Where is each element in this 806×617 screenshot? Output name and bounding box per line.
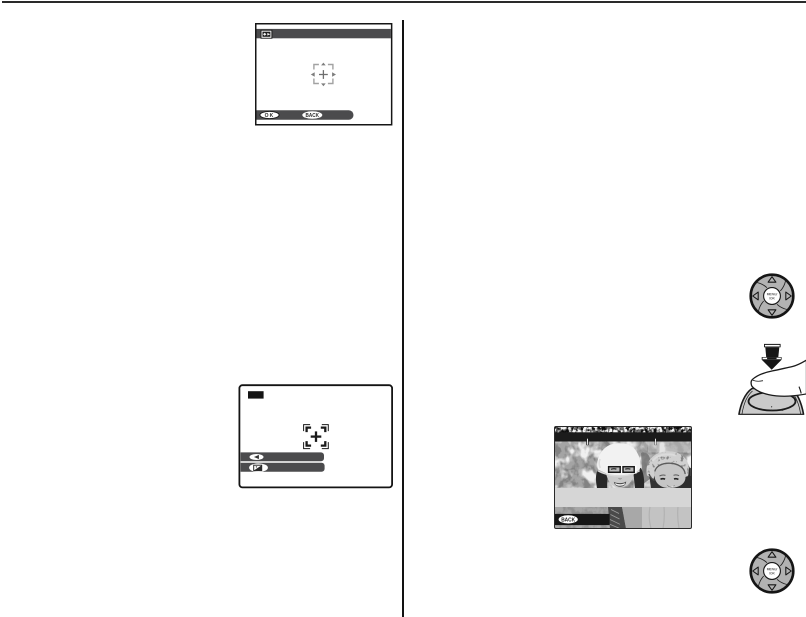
svg-text:OK: OK xyxy=(265,113,275,119)
svg-text:BACK: BACK xyxy=(561,517,575,523)
svg-text:BACK: BACK xyxy=(306,113,320,119)
svg-text:/OK: /OK xyxy=(769,296,775,300)
svg-text:/OK: /OK xyxy=(769,571,775,575)
